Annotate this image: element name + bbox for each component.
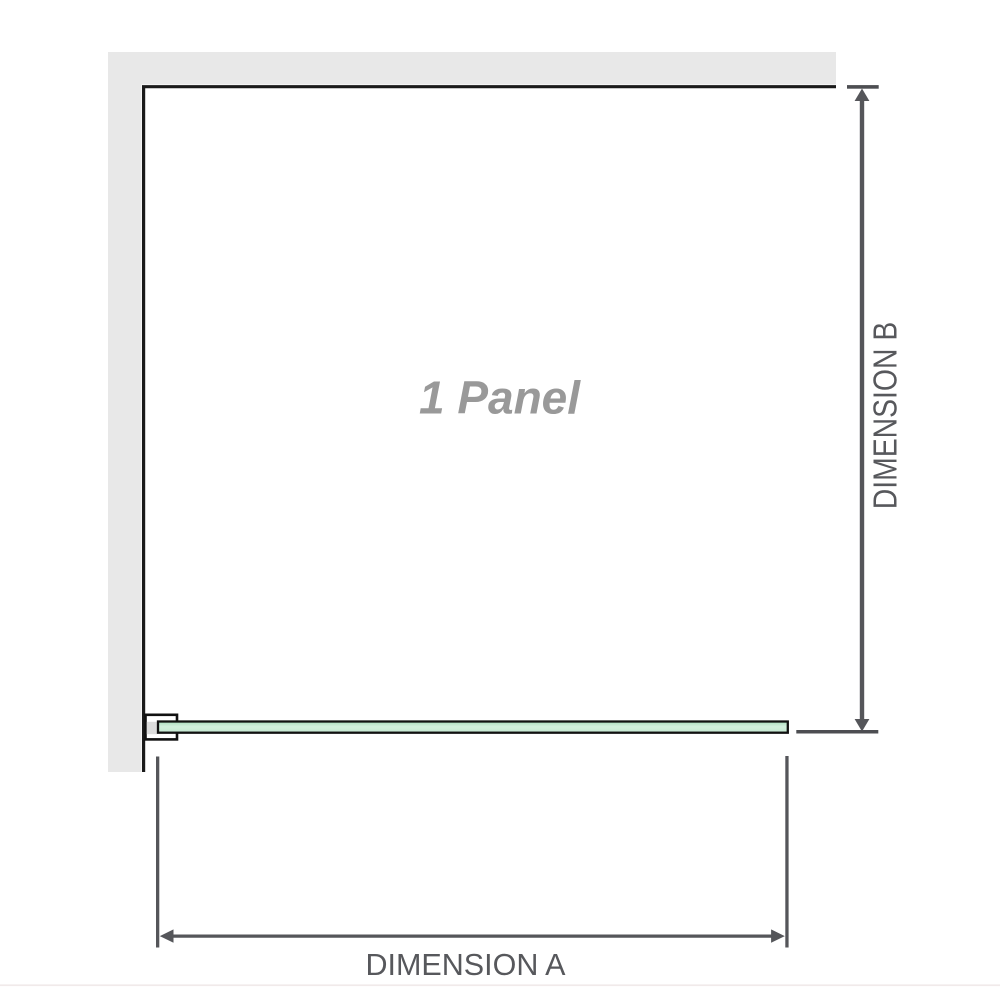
svg-text:DIMENSION B: DIMENSION B (866, 322, 904, 510)
svg-text:1 Panel: 1 Panel (419, 372, 581, 424)
svg-text:DIMENSION A: DIMENSION A (366, 948, 567, 982)
